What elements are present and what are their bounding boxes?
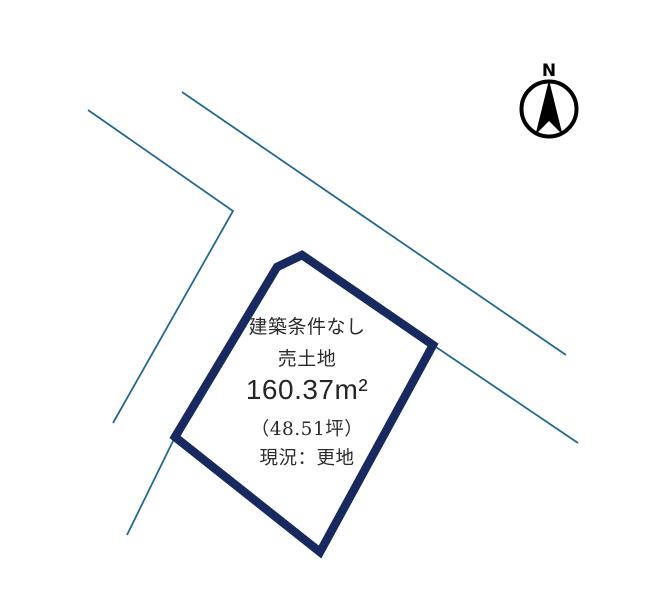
parcel-sale-type-text: 売土地 bbox=[278, 344, 337, 371]
land-plot-diagram: N 建築条件なし 売土地 160.37m² （48.51坪） 現況：更地 bbox=[0, 0, 664, 615]
parcel-label-block: 建築条件なし 売土地 160.37m² （48.51坪） 現況：更地 bbox=[0, 0, 664, 615]
parcel-area-tsubo: （48.51坪） bbox=[251, 415, 363, 441]
parcel-condition-text: 建築条件なし bbox=[248, 312, 365, 339]
parcel-area-sqm: 160.37m² bbox=[246, 374, 368, 406]
parcel-status-text: 現況：更地 bbox=[259, 444, 354, 470]
